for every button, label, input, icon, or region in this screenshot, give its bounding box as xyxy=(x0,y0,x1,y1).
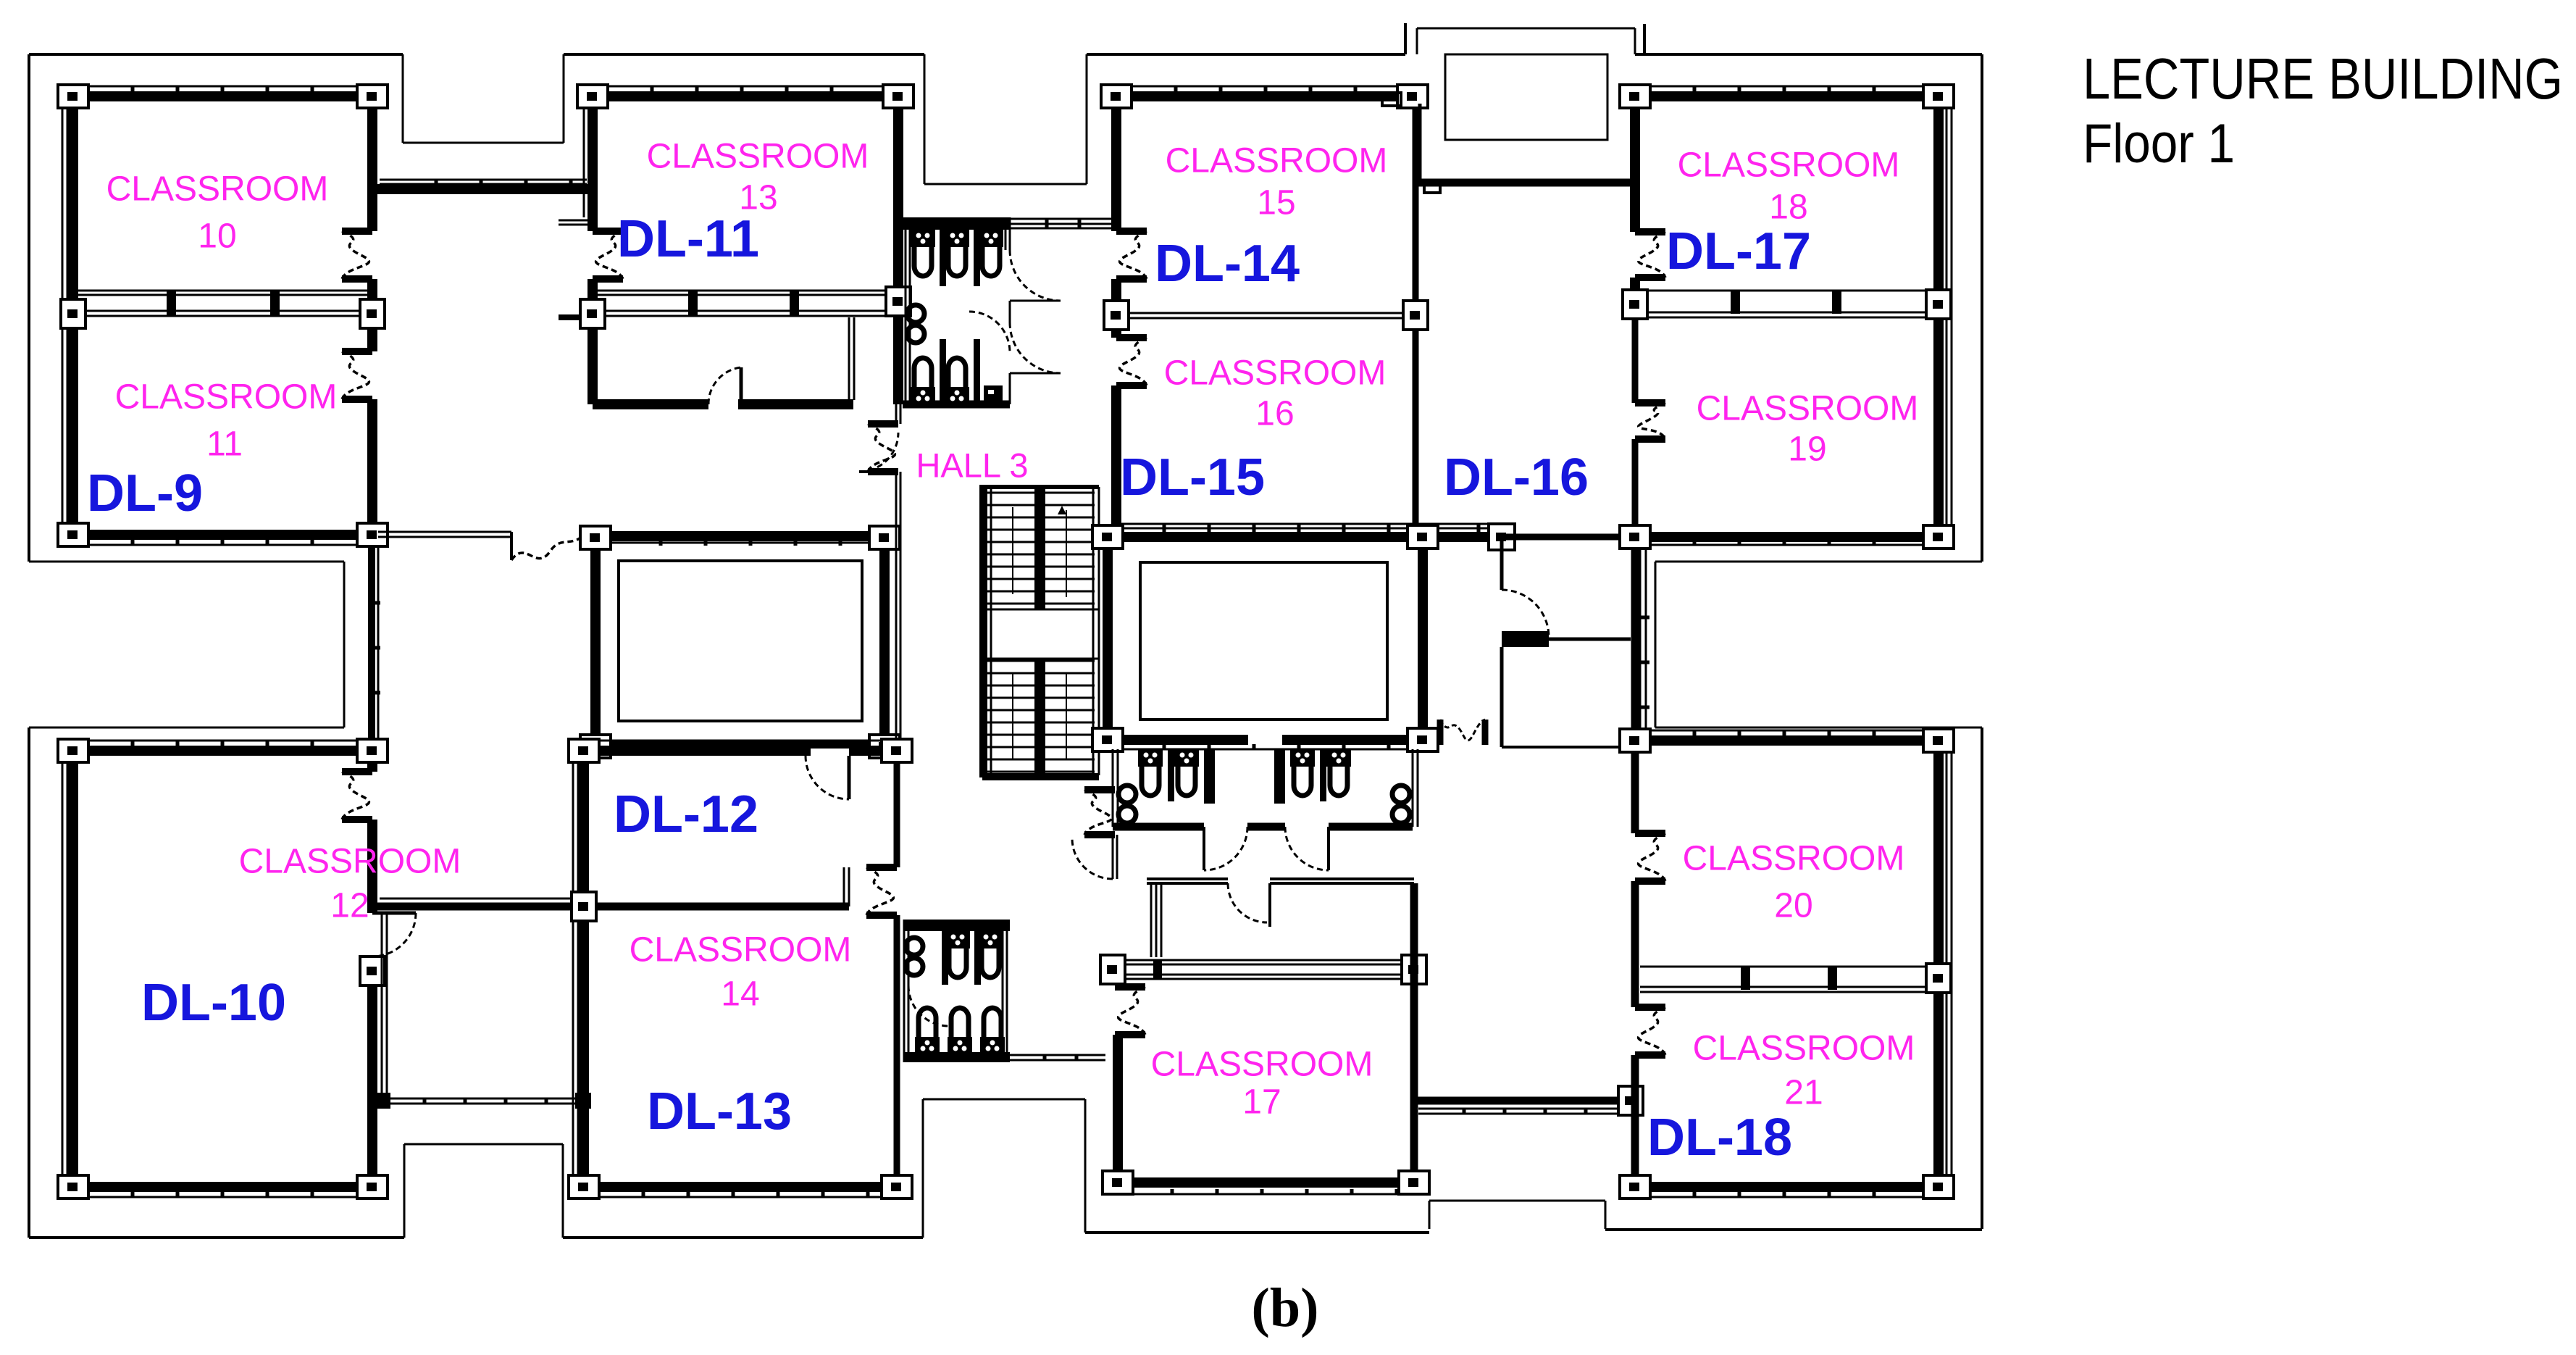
svg-text:CLASSROOM: CLASSROOM xyxy=(1693,1030,1915,1068)
svg-text:CLASSROOM: CLASSROOM xyxy=(1151,1046,1373,1084)
svg-text:20: 20 xyxy=(1774,887,1812,925)
svg-text:CLASSROOM: CLASSROOM xyxy=(106,170,329,209)
svg-text:CLASSROOM: CLASSROOM xyxy=(1683,840,1905,878)
svg-text:DL-18: DL-18 xyxy=(1647,1109,1792,1167)
svg-text:LECTURE BUILDING: LECTURE BUILDING xyxy=(2083,46,2563,111)
svg-text:CLASSROOM: CLASSROOM xyxy=(1164,354,1387,393)
svg-text:10: 10 xyxy=(198,217,236,256)
svg-text:DL-15: DL-15 xyxy=(1120,449,1265,506)
svg-text:DL-9: DL-9 xyxy=(87,464,203,522)
svg-text:HALL 3: HALL 3 xyxy=(916,446,1028,484)
svg-text:15: 15 xyxy=(1257,184,1295,222)
svg-text:DL-13: DL-13 xyxy=(647,1083,792,1141)
svg-text:(b): (b) xyxy=(1252,1277,1319,1338)
svg-text:DL-17: DL-17 xyxy=(1666,222,1811,280)
svg-text:CLASSROOM: CLASSROOM xyxy=(1678,146,1900,185)
svg-text:Floor 1: Floor 1 xyxy=(2083,113,2235,175)
svg-text:DL-12: DL-12 xyxy=(614,785,758,843)
svg-text:CLASSROOM: CLASSROOM xyxy=(1166,142,1388,180)
svg-text:18: 18 xyxy=(1769,188,1807,227)
svg-text:DL-10: DL-10 xyxy=(141,974,286,1032)
svg-text:19: 19 xyxy=(1788,430,1826,469)
svg-text:DL-16: DL-16 xyxy=(1444,449,1589,506)
svg-text:14: 14 xyxy=(721,975,759,1014)
svg-text:DL-11: DL-11 xyxy=(617,210,759,268)
svg-text:21: 21 xyxy=(1784,1074,1823,1112)
svg-text:11: 11 xyxy=(206,425,243,464)
svg-text:CLASSROOM: CLASSROOM xyxy=(630,931,852,970)
svg-text:CLASSROOM: CLASSROOM xyxy=(1697,390,1919,428)
svg-text:17: 17 xyxy=(1242,1083,1281,1122)
svg-text:CLASSROOM: CLASSROOM xyxy=(647,138,869,176)
svg-text:12: 12 xyxy=(330,887,369,925)
svg-text:DL-14: DL-14 xyxy=(1155,235,1300,293)
svg-text:CLASSROOM: CLASSROOM xyxy=(115,378,338,417)
svg-text:16: 16 xyxy=(1255,395,1294,433)
svg-text:CLASSROOM: CLASSROOM xyxy=(239,843,461,881)
